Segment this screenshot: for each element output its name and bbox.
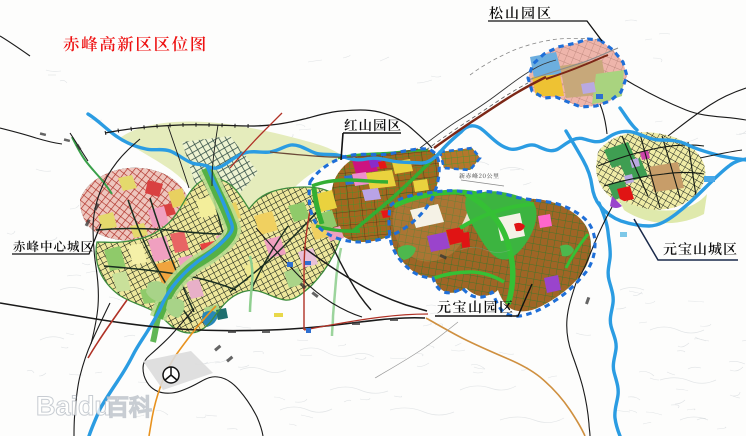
svg-text:新赤峰20公里: 新赤峰20公里	[459, 171, 499, 180]
svg-text:元宝山园区: 元宝山园区	[437, 297, 515, 317]
svg-text:百科: 百科	[106, 388, 152, 422]
svg-text:赤峰中心城区: 赤峰中心城区	[13, 237, 94, 255]
svg-text:松山园区: 松山园区	[489, 3, 553, 23]
svg-text:赤峰高新区区位图: 赤峰高新区区位图	[63, 31, 208, 55]
svg-text:红山园区: 红山园区	[344, 114, 402, 134]
svg-text:Baidu: Baidu	[36, 384, 111, 423]
svg-text:元宝山城区: 元宝山城区	[663, 239, 738, 259]
